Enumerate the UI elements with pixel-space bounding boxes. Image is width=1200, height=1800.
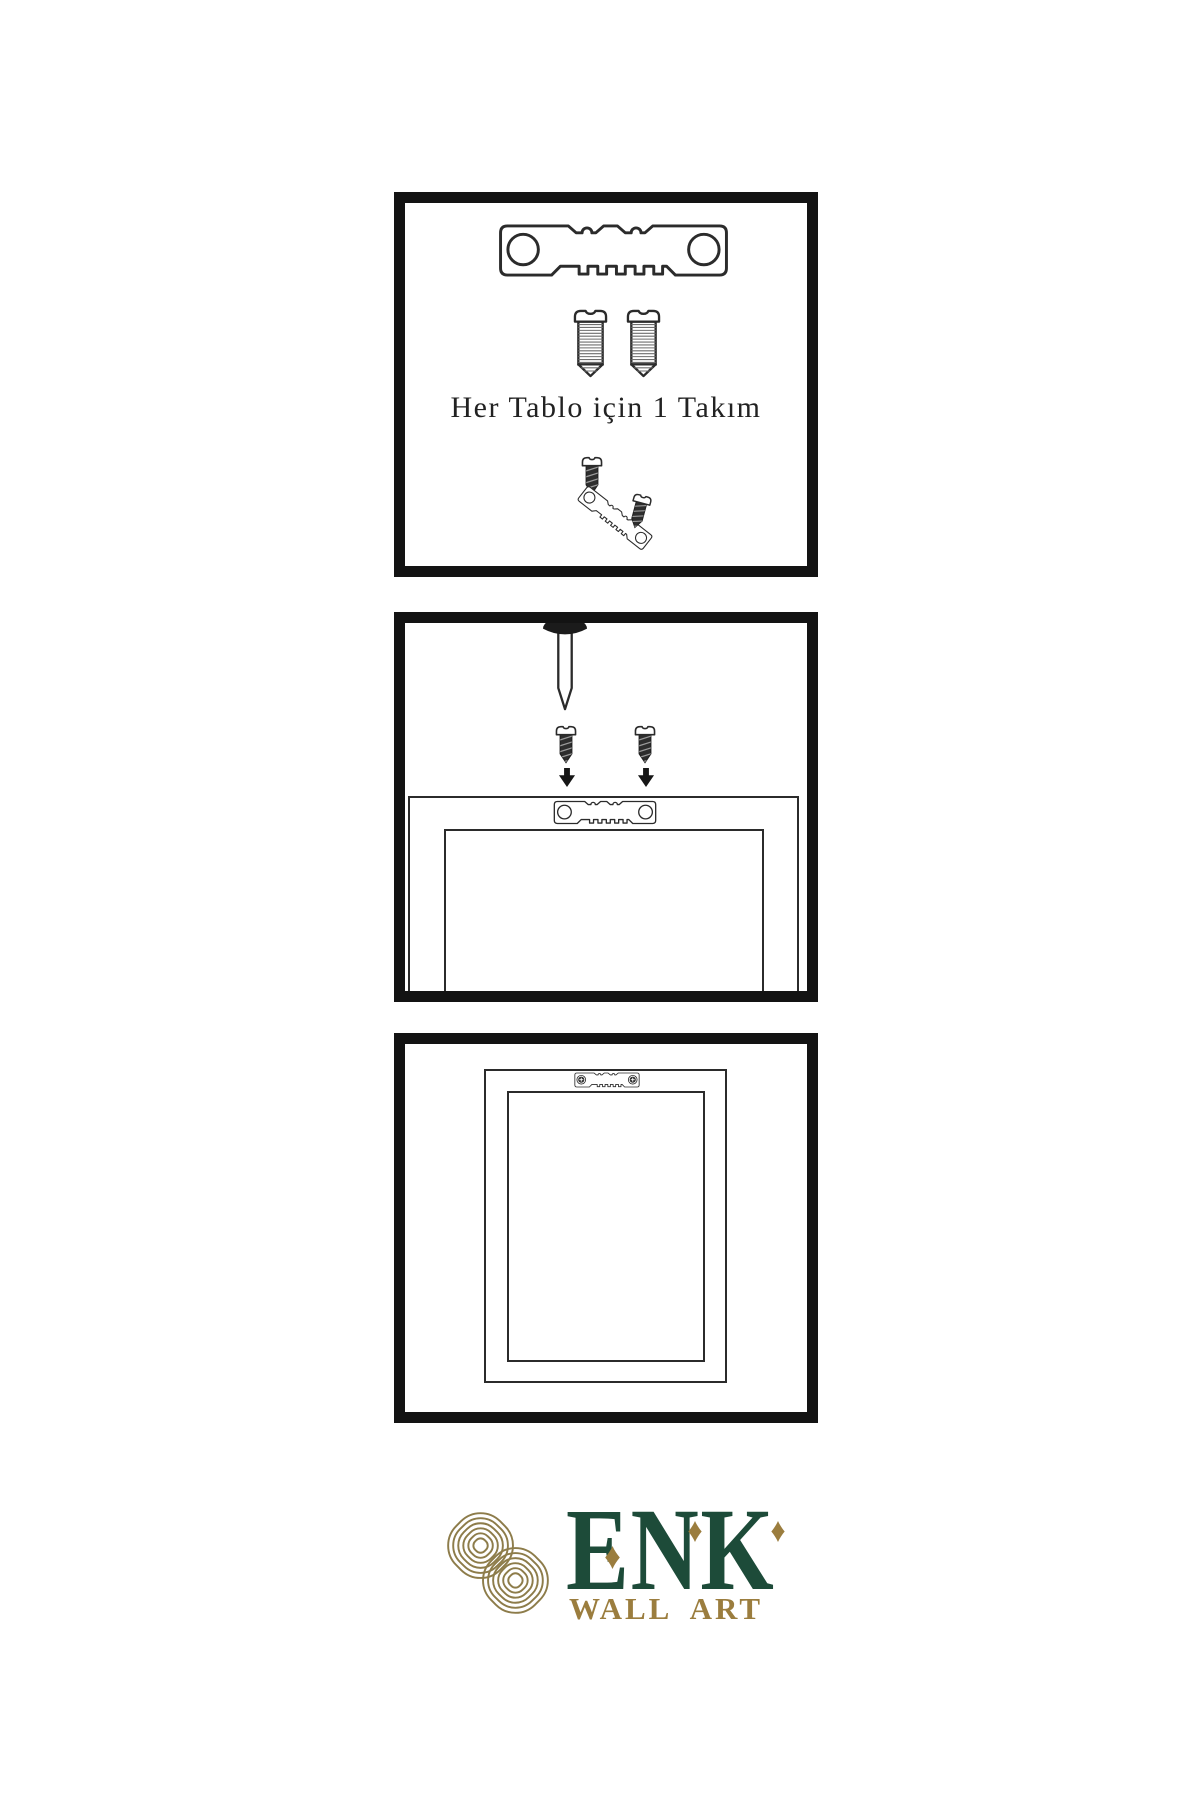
short-screw-icon	[624, 491, 653, 533]
sawtooth-hanger-icon	[497, 223, 730, 278]
screwed-sawtooth-hanger-icon	[574, 1072, 640, 1088]
diamond-icon	[688, 1521, 702, 1542]
short-screw-icon	[634, 724, 656, 766]
frame-back-inner-edge	[507, 1091, 705, 1362]
short-screw-icon	[555, 724, 577, 766]
panel-install	[394, 612, 818, 1002]
arrow-down-icon	[637, 768, 655, 787]
diamond-icon	[605, 1546, 620, 1569]
panel-kit: Her Tablo için 1 Takım	[394, 192, 818, 577]
arrow-down-icon	[558, 768, 576, 787]
kit-caption: Her Tablo için 1 Takım	[405, 391, 807, 425]
brand-subtitle: WALL ART	[569, 1591, 763, 1627]
panel-hang	[394, 1033, 818, 1423]
mounted-sawtooth-hanger-icon	[553, 800, 657, 825]
nail-icon	[542, 617, 588, 715]
brand-logo: ENK WALL ART	[430, 1495, 830, 1655]
screw-icon	[626, 308, 661, 378]
screw-icon	[573, 308, 608, 378]
page: Her Tablo için 1 Takım ENK WALL ART	[0, 0, 1200, 1800]
frame-back-inner-edge	[444, 829, 764, 1002]
knot-icon	[436, 1501, 560, 1625]
diamond-icon	[771, 1521, 785, 1542]
